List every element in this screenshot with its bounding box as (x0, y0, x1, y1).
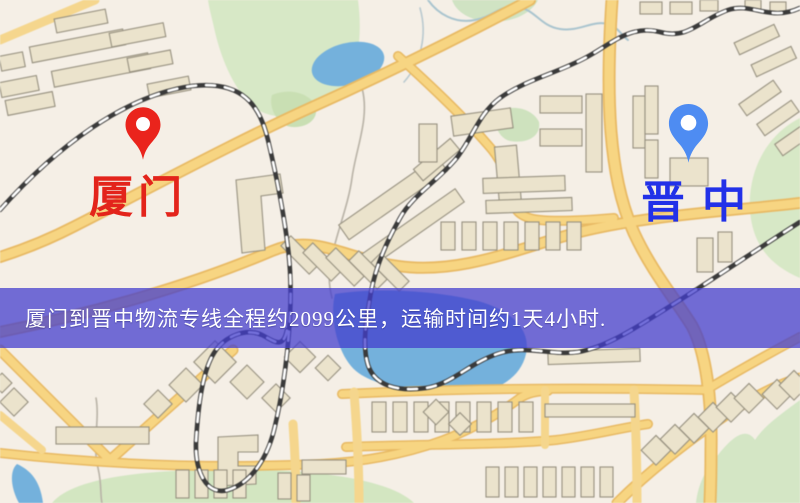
map-viewport[interactable]: 厦门 晋中 厦门到晋中物流专线全程约2099公里，运输时间约1天4小时. (0, 0, 800, 503)
destination-pin-shape (669, 104, 708, 163)
destination-pin-icon[interactable] (665, 100, 712, 169)
origin-pin-icon[interactable] (122, 101, 164, 168)
route-info-banner: 厦门到晋中物流专线全程约2099公里，运输时间约1天4小时. (0, 288, 800, 348)
origin-pin-hole (136, 117, 150, 131)
origin-pin-shape (126, 107, 161, 160)
map-canvas (0, 0, 800, 503)
destination-label: 晋中 (641, 181, 763, 225)
origin-label: 厦门 (89, 176, 187, 220)
route-info-text: 厦门到晋中物流专线全程约2099公里，运输时间约1天4小时. (0, 303, 606, 333)
destination-pin-hole (681, 115, 697, 131)
